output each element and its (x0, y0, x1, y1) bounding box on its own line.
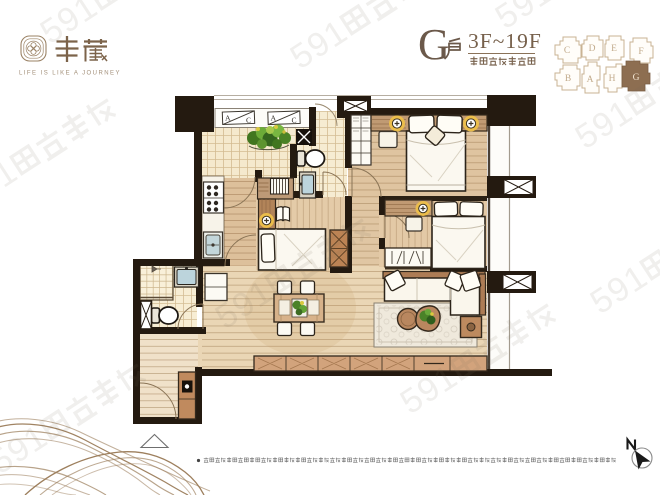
svg-text:C: C (291, 116, 296, 125)
svg-text:F: F (638, 47, 643, 57)
svg-text:B: B (565, 74, 571, 84)
svg-text:C: C (564, 46, 570, 56)
svg-text:G: G (418, 20, 450, 69)
svg-text:G: G (633, 73, 640, 83)
svg-text:C: C (246, 116, 251, 125)
svg-text:D: D (589, 44, 596, 54)
svg-text:H: H (609, 74, 616, 84)
svg-text:E: E (611, 44, 617, 54)
svg-text:A: A (270, 113, 276, 122)
svg-text:A: A (225, 113, 231, 122)
svg-text:A: A (587, 75, 594, 85)
svg-text:LIFE IS LIKE A JOURNEY: LIFE IS LIKE A JOURNEY (19, 71, 121, 77)
svg-text:3F~19F: 3F~19F (468, 29, 542, 53)
